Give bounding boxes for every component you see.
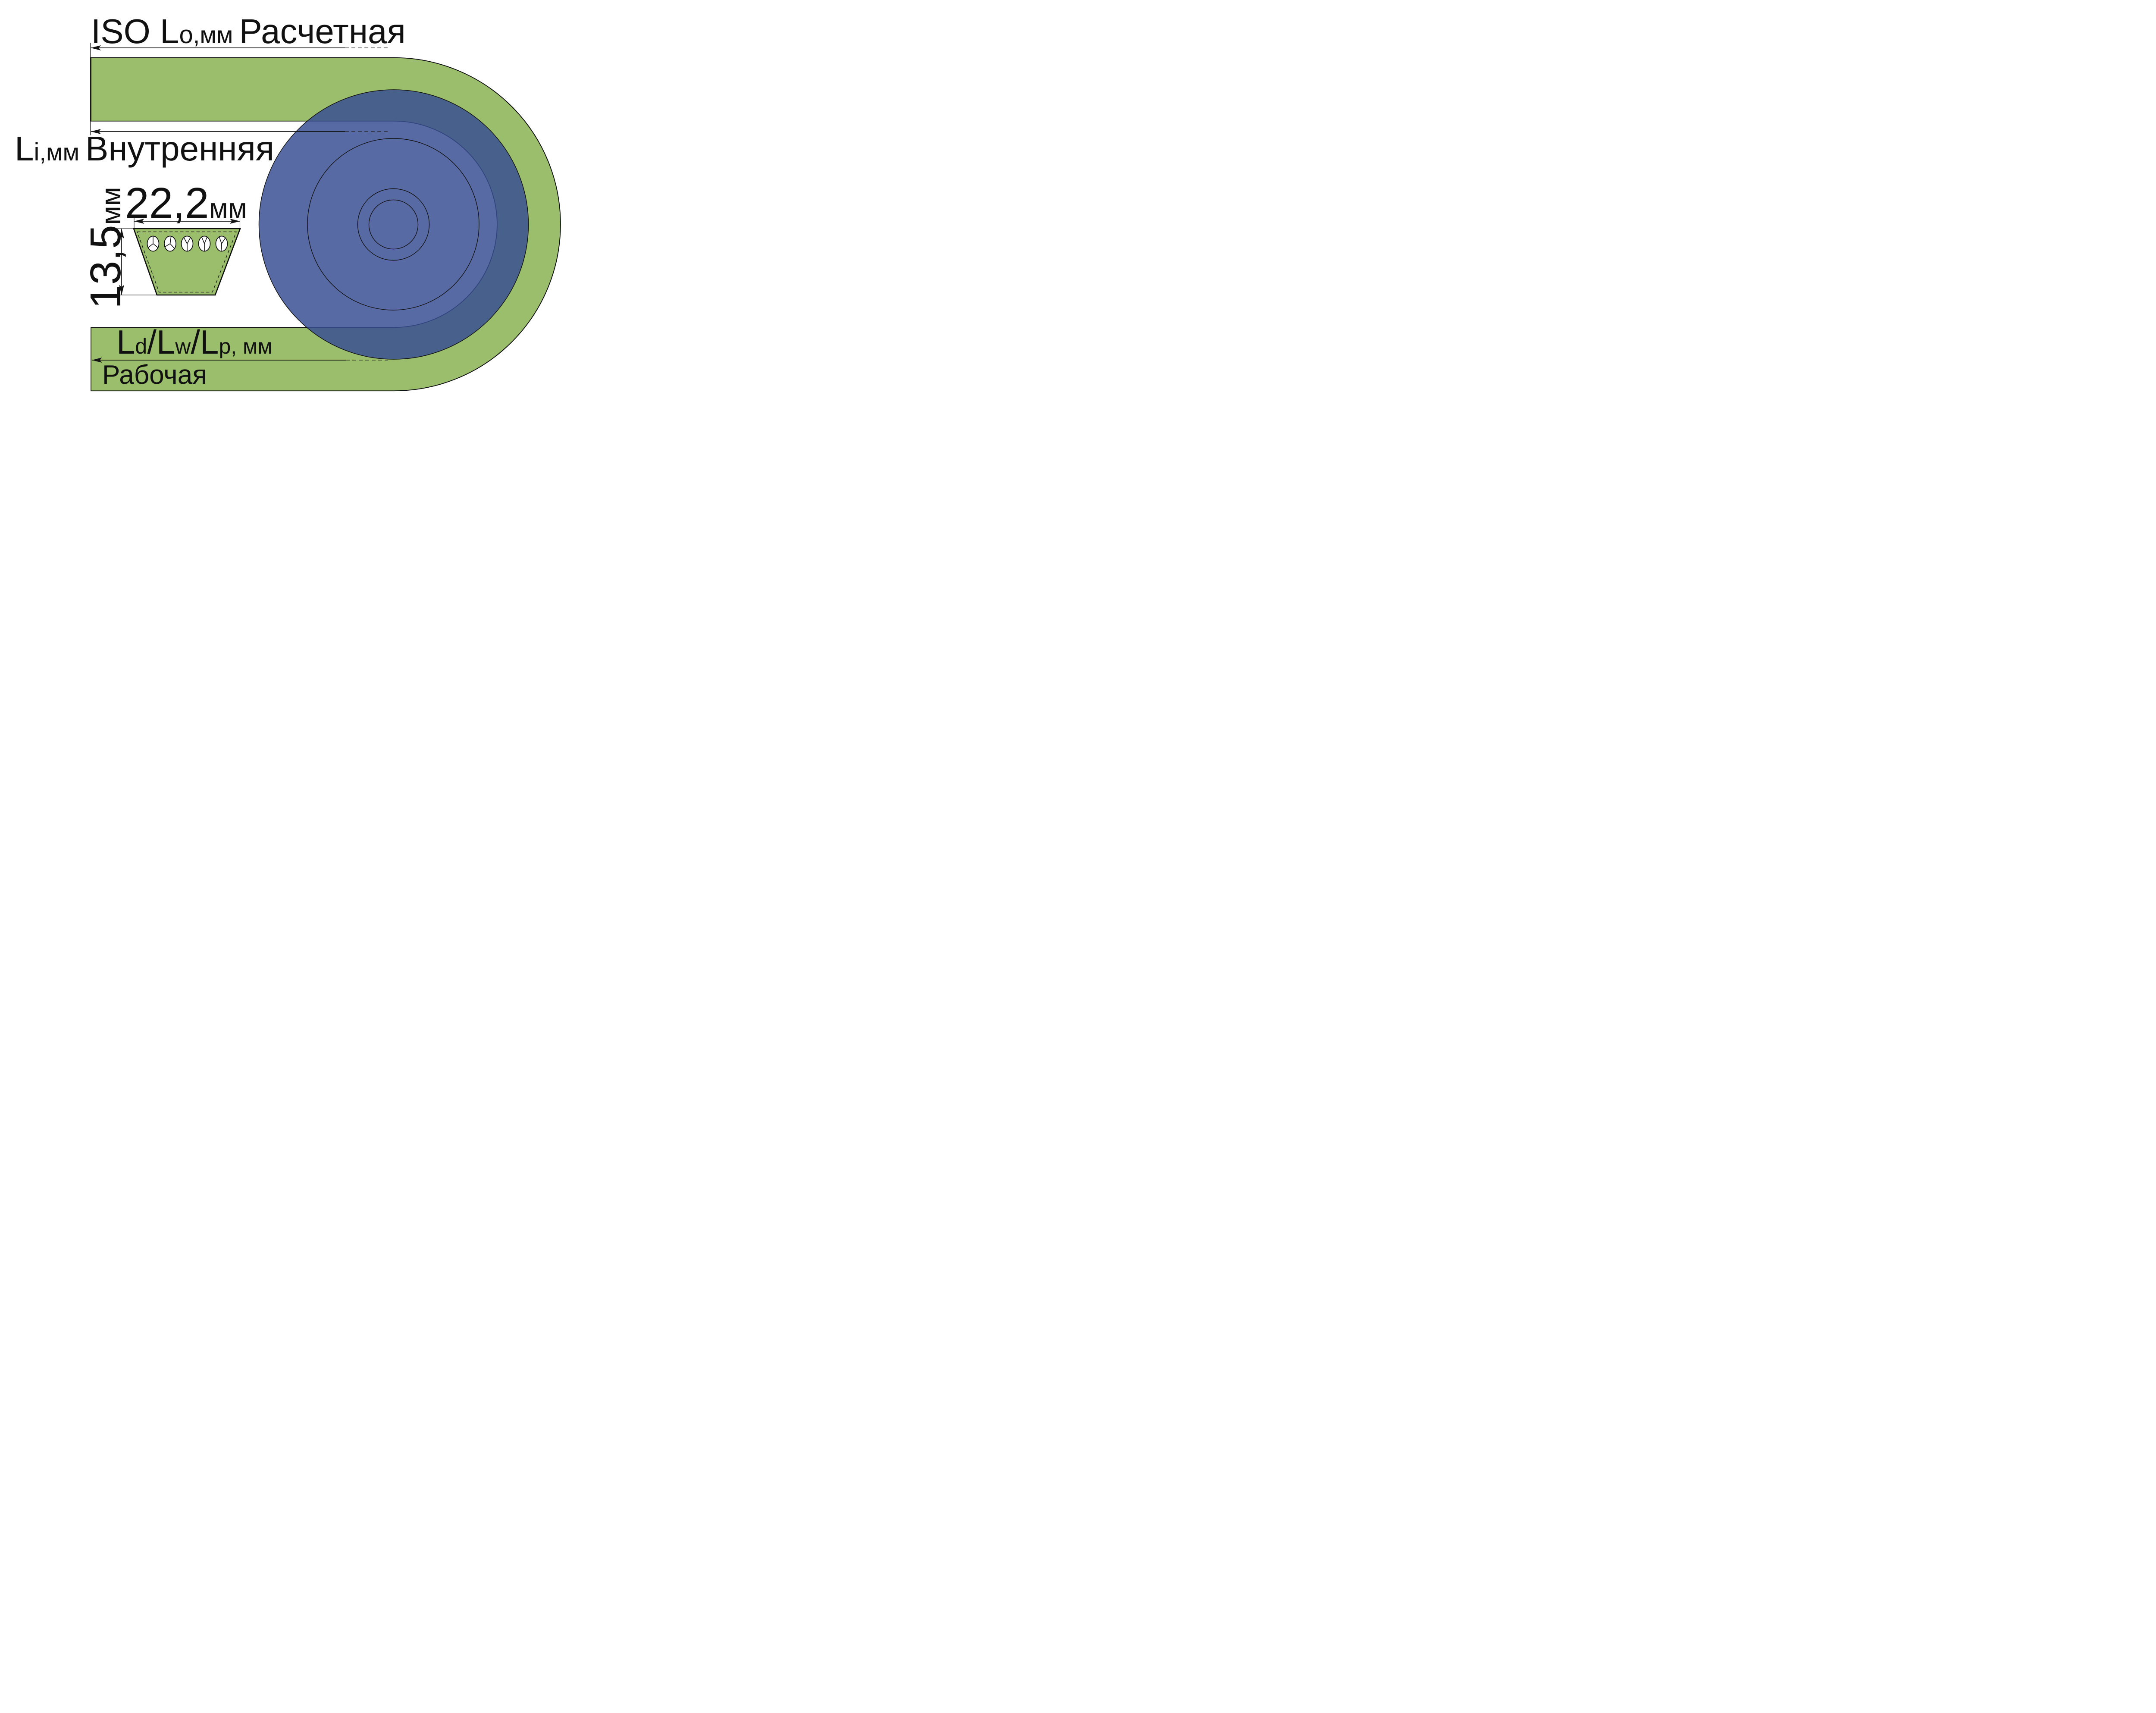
belt-cross-section (134, 229, 240, 295)
belt-diagram: ISO Lo,ммРасчетная Li,ммВнутренняя 22,2м… (0, 0, 642, 428)
inner-length-label: Li,ммВнутренняя (15, 129, 274, 168)
belt-height-label: 13,5мм (81, 187, 130, 309)
working-length-label: Рабочая (102, 360, 207, 390)
pulley-disc (259, 90, 529, 359)
belt-diagram-canvas: ISO Lo,ммРасчетная Li,ммВнутренняя 22,2м… (0, 0, 642, 428)
belt-width-label: 22,2мм (125, 179, 247, 227)
outer-length-label: ISO Lo,ммРасчетная (91, 12, 406, 50)
